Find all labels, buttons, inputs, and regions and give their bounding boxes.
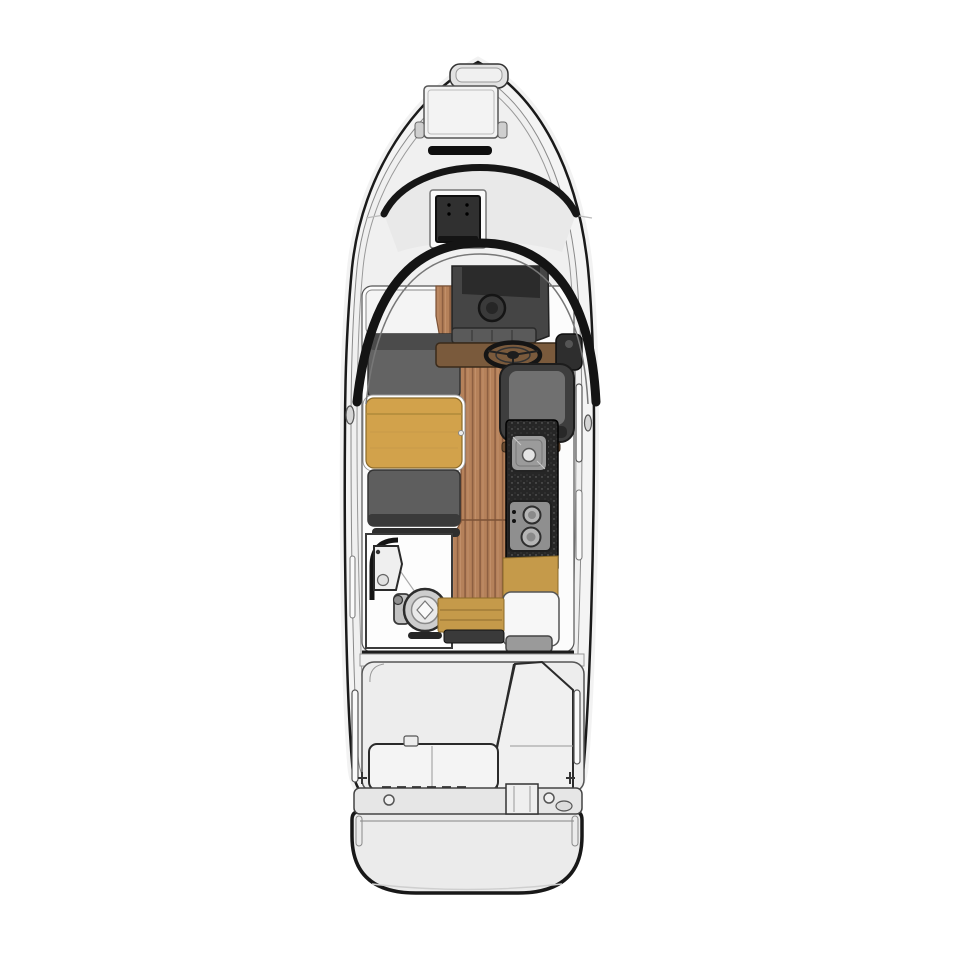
transom <box>354 784 582 814</box>
helm-seat-cushion <box>509 371 565 425</box>
skylight-hinge-dot <box>447 203 450 206</box>
stove-burner-front-center <box>528 511 536 519</box>
cleat-starboard <box>585 415 592 431</box>
cockpit <box>362 662 584 792</box>
transom-gate <box>506 784 538 814</box>
stove-knob <box>512 510 516 514</box>
instrument-panel <box>452 328 536 343</box>
hatch-hinge-port <box>415 122 424 138</box>
swim-platform-deck <box>352 812 582 893</box>
stove-burner-aft-center <box>527 533 536 542</box>
skylight-hinge-dot <box>465 203 468 206</box>
fuel-filler <box>556 801 572 811</box>
anchor-locker <box>456 68 502 82</box>
foredeck-hatch <box>424 86 498 138</box>
companionway-steps <box>438 598 504 643</box>
companionway-lower-step <box>506 636 552 652</box>
sink-drain <box>523 449 536 462</box>
bench-latch <box>404 736 418 746</box>
head-faucet <box>376 550 380 554</box>
head-sink-drain <box>378 575 389 586</box>
cleat-port <box>346 406 354 424</box>
grab-rail-starboard-fwd <box>576 384 582 462</box>
grab-rail-port-aft <box>352 690 358 782</box>
wheel-hub <box>507 351 519 359</box>
boat-plan-canvas <box>0 0 956 956</box>
roof-vent-bar <box>428 146 492 155</box>
toilet-base-shadow <box>408 632 442 639</box>
cockpit-bench-aft <box>369 744 498 790</box>
compass-center <box>486 302 498 314</box>
roof-skylight-hatch <box>436 196 480 242</box>
dinette-aft-seat-edge <box>368 514 460 526</box>
dinette-table <box>366 398 462 468</box>
boat-deck-plan-illustration <box>0 0 956 956</box>
step-landing <box>438 598 504 632</box>
grab-rail-starboard-mid <box>576 490 582 560</box>
toilet-pump-cap <box>394 596 403 605</box>
throttle-lever <box>565 340 573 348</box>
table-latch <box>459 431 464 436</box>
galley <box>503 420 559 652</box>
step-riser-shadow <box>444 630 504 643</box>
grab-rail-port-mid <box>350 556 355 618</box>
dashboard-panel <box>462 266 540 298</box>
skylight-hinge-dot <box>465 212 468 215</box>
swim-platform <box>352 812 582 893</box>
scupper-starboard <box>544 793 554 803</box>
skylight-hinge-dot <box>447 212 450 215</box>
grab-rail-starboard-aft <box>574 690 580 764</box>
hatch-hinge-starboard <box>498 122 507 138</box>
scupper-port <box>384 795 394 805</box>
stove-knob <box>512 519 516 523</box>
